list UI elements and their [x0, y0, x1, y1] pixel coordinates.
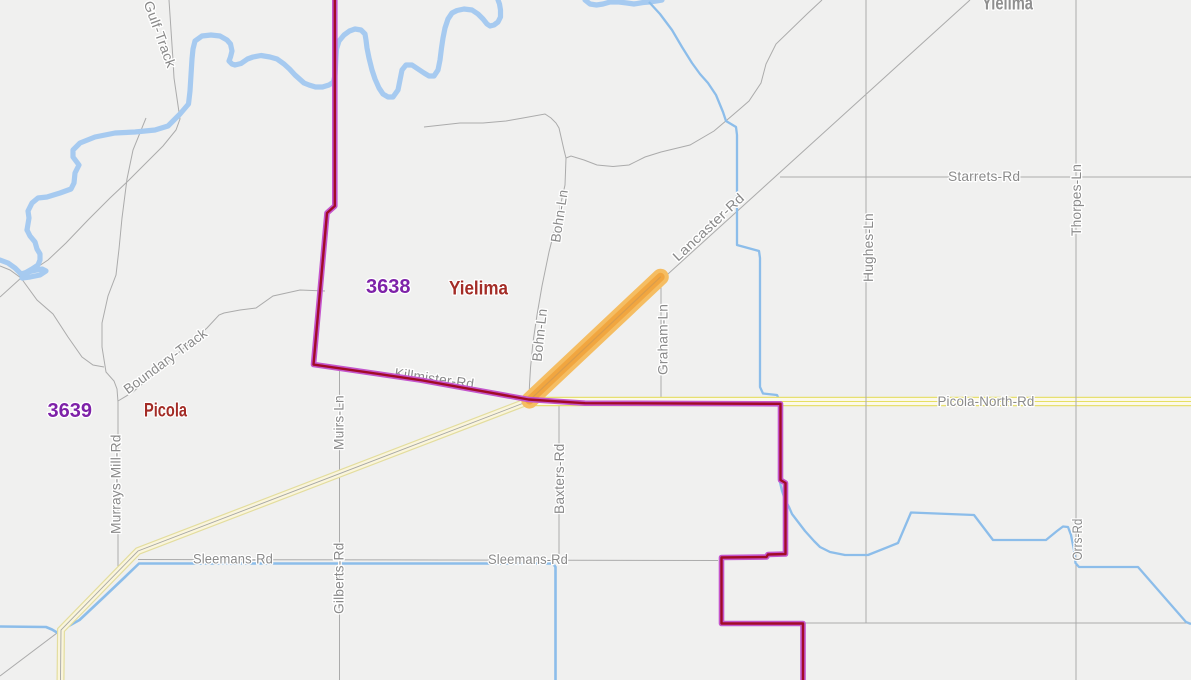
svg-text:Muirs-Ln: Muirs-Ln [332, 395, 347, 450]
svg-text:Gulf-Track: Gulf-Track [141, 0, 179, 70]
svg-text:Yielima: Yielima [982, 0, 1033, 15]
svg-text:Bohn-Ln: Bohn-Ln [548, 189, 571, 244]
svg-text:Picola: Picola [144, 400, 187, 422]
svg-text:Starrets-Rd: Starrets-Rd [948, 169, 1020, 184]
svg-text:3638: 3638 [366, 276, 411, 298]
svg-text:Lancaster-Rd: Lancaster-Rd [670, 190, 748, 264]
svg-text:Sleemans-Rd: Sleemans-Rd [488, 552, 568, 567]
svg-text:Thorpes-Ln: Thorpes-Ln [1069, 164, 1084, 236]
svg-text:Gilberts-Rd: Gilberts-Rd [332, 543, 347, 614]
svg-text:Hughes-Ln: Hughes-Ln [861, 213, 876, 282]
svg-text:Baxters-Rd: Baxters-Rd [552, 443, 567, 514]
svg-text:Orrs-Rd: Orrs-Rd [1070, 519, 1085, 561]
svg-text:Graham-Ln: Graham-Ln [656, 304, 671, 375]
svg-text:Yielima: Yielima [449, 278, 508, 300]
svg-text:Picola-North-Rd: Picola-North-Rd [938, 394, 1035, 409]
svg-text:Boundary-Track: Boundary-Track [121, 326, 210, 397]
svg-text:Sleemans-Rd: Sleemans-Rd [193, 552, 273, 567]
svg-text:Bohn-Ln: Bohn-Ln [530, 308, 550, 362]
svg-text:3639: 3639 [48, 400, 93, 422]
svg-text:Murrays-Mill-Rd: Murrays-Mill-Rd [109, 434, 124, 534]
